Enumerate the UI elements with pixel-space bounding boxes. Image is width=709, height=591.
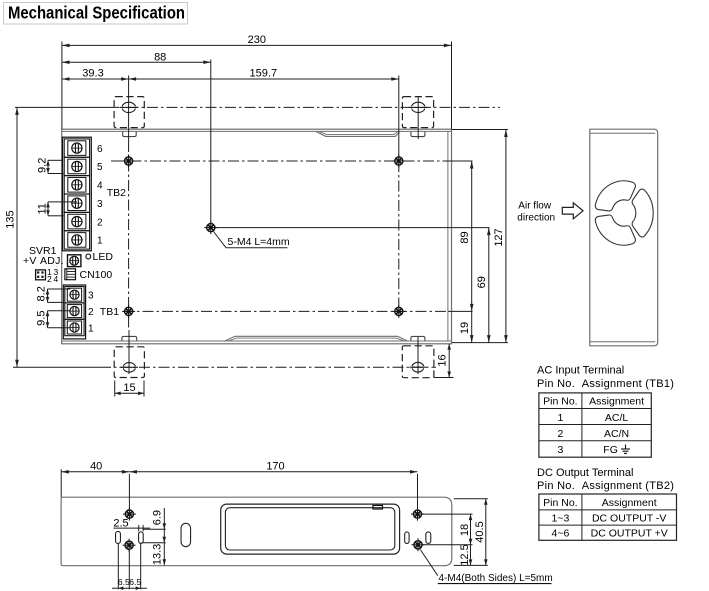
svg-text:DC OUTPUT +V: DC OUTPUT +V: [591, 528, 668, 540]
svg-text:88: 88: [154, 51, 166, 63]
svg-text:6.9: 6.9: [151, 510, 163, 525]
svg-text:DC Output Terminal: DC Output Terminal: [537, 467, 633, 479]
svg-text:AC/N: AC/N: [604, 428, 629, 440]
svg-text:230: 230: [248, 34, 266, 46]
svg-text:Pin No.: Pin No.: [543, 497, 577, 509]
svg-text:13.3: 13.3: [152, 544, 164, 565]
svg-text:15: 15: [123, 382, 135, 394]
svg-text:Assignment: Assignment: [602, 497, 657, 509]
svg-text:Air flow: Air flow: [518, 201, 552, 212]
svg-text:TB1: TB1: [100, 306, 119, 318]
svg-text:69: 69: [476, 276, 488, 288]
svg-text:40.5: 40.5: [474, 521, 486, 542]
svg-text:159.7: 159.7: [250, 67, 278, 79]
svg-text:6.5: 6.5: [129, 577, 141, 587]
svg-text:1: 1: [88, 323, 94, 334]
svg-text:4: 4: [54, 274, 59, 284]
svg-text:127: 127: [493, 228, 505, 246]
svg-text:TB2: TB2: [107, 187, 126, 199]
svg-text:2: 2: [47, 274, 52, 284]
svg-text:2: 2: [97, 217, 103, 228]
svg-text:direction: direction: [517, 212, 555, 223]
svg-text:4: 4: [97, 181, 103, 192]
svg-text:3: 3: [97, 199, 103, 210]
svg-text:39.3: 39.3: [82, 67, 103, 79]
svg-text:8.2: 8.2: [36, 286, 48, 301]
svg-text:12.5: 12.5: [459, 544, 471, 565]
svg-text:2: 2: [88, 307, 94, 318]
svg-text:CN100: CN100: [80, 269, 113, 281]
svg-text:AC/L: AC/L: [605, 412, 629, 424]
svg-text:16: 16: [437, 354, 449, 366]
svg-text:FG: FG: [603, 444, 618, 456]
svg-text:19: 19: [459, 322, 471, 334]
svg-text:18: 18: [459, 524, 471, 536]
svg-text:4-M4(Both Sides) L=5mm: 4-M4(Both Sides) L=5mm: [439, 573, 553, 584]
svg-text:6: 6: [97, 144, 103, 155]
svg-text:Mechanical Specification: Mechanical Specification: [8, 2, 185, 22]
svg-text:3: 3: [557, 444, 563, 456]
svg-text:5: 5: [97, 162, 103, 173]
svg-text:1: 1: [557, 412, 563, 424]
svg-text:Assignment: Assignment: [589, 396, 644, 408]
svg-text:+V ADJ.: +V ADJ.: [23, 255, 64, 267]
svg-text:2: 2: [557, 428, 563, 440]
svg-text:3: 3: [88, 291, 94, 302]
svg-text:4~6: 4~6: [551, 528, 569, 540]
svg-text:DC OUTPUT -V: DC OUTPUT -V: [592, 512, 666, 524]
svg-text:AC Input Terminal: AC Input Terminal: [537, 365, 624, 377]
svg-text:6.5: 6.5: [118, 577, 130, 587]
svg-text:Pin No. Assignment (TB1): Pin No. Assignment (TB1): [537, 378, 674, 390]
svg-text:Pin No.: Pin No.: [543, 396, 577, 408]
svg-text:135: 135: [5, 210, 17, 228]
svg-text:89: 89: [459, 231, 471, 243]
svg-text:170: 170: [266, 461, 284, 473]
svg-text:11: 11: [37, 203, 49, 214]
svg-text:9.5: 9.5: [36, 311, 48, 326]
svg-text:40: 40: [90, 461, 102, 473]
svg-text:1~3: 1~3: [551, 512, 569, 524]
svg-text:5-M4 L=4mm: 5-M4 L=4mm: [228, 236, 290, 248]
svg-text:Pin No. Assignment (TB2): Pin No. Assignment (TB2): [537, 480, 674, 492]
svg-text:1: 1: [97, 236, 103, 247]
svg-text:9.2: 9.2: [37, 158, 49, 173]
svg-text:LED: LED: [93, 251, 114, 263]
